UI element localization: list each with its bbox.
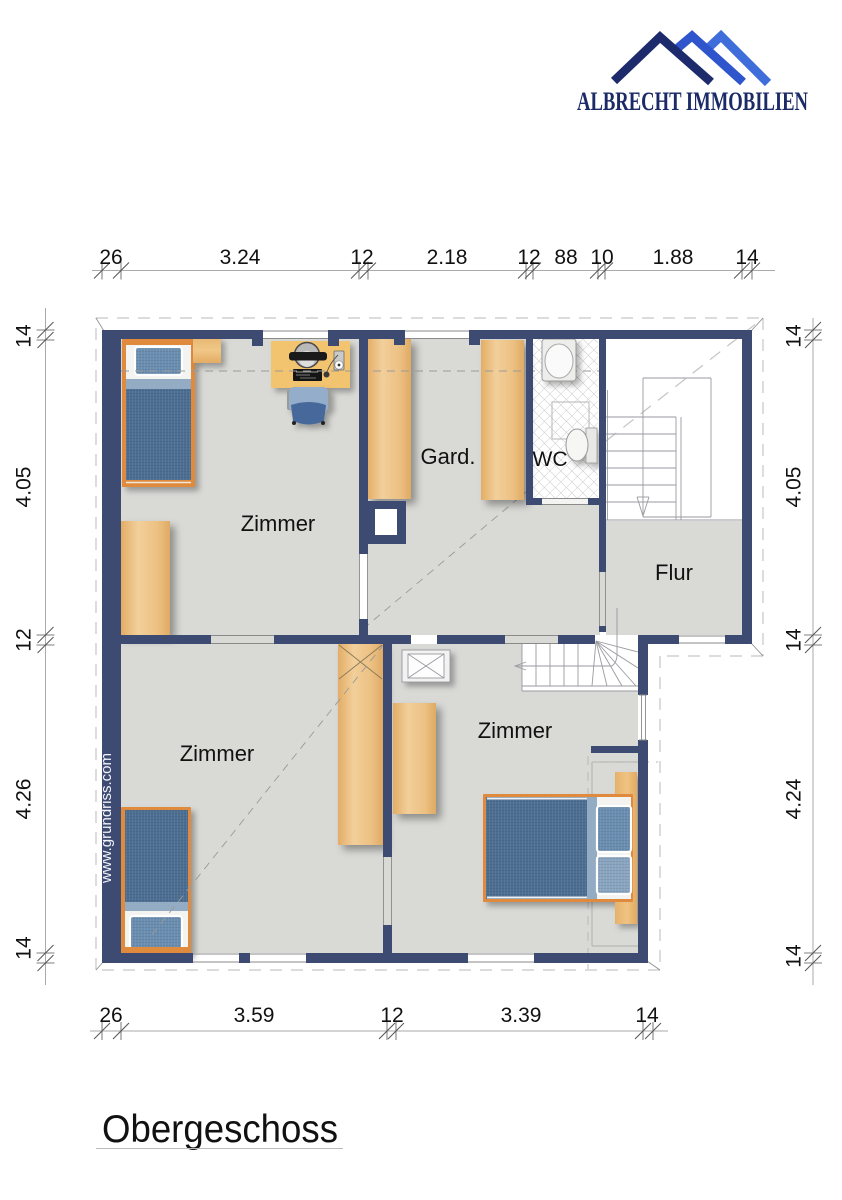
svg-text:Zimmer: Zimmer (241, 511, 316, 536)
svg-text:4.24: 4.24 (783, 778, 806, 819)
svg-text:14: 14 (635, 1004, 659, 1027)
svg-text:Zimmer: Zimmer (180, 741, 255, 766)
svg-text:12: 12 (13, 628, 36, 651)
svg-text:Flur: Flur (655, 560, 693, 585)
svg-text:14: 14 (783, 324, 806, 348)
svg-text:3.59: 3.59 (234, 1004, 275, 1027)
svg-text:12: 12 (517, 246, 540, 269)
svg-text:ALBRECHT IMMOBILIEN: ALBRECHT IMMOBILIEN (577, 87, 808, 116)
svg-text:Zimmer: Zimmer (478, 718, 553, 743)
svg-text:4.05: 4.05 (783, 467, 806, 508)
svg-text:3.24: 3.24 (220, 246, 261, 269)
svg-text:4.05: 4.05 (13, 467, 36, 508)
svg-text:Gard.: Gard. (420, 444, 475, 469)
svg-text:3.39: 3.39 (501, 1004, 542, 1027)
svg-text:14: 14 (783, 628, 806, 652)
svg-text:12: 12 (380, 1004, 403, 1027)
svg-text:14: 14 (13, 324, 36, 348)
svg-text:14: 14 (735, 246, 759, 269)
svg-text:14: 14 (13, 936, 36, 960)
svg-text:10: 10 (590, 246, 613, 269)
svg-text:WC: WC (533, 448, 568, 471)
svg-text:12: 12 (350, 246, 373, 269)
svg-text:1.88: 1.88 (653, 246, 694, 269)
svg-text:4.26: 4.26 (13, 779, 36, 820)
svg-text:Obergeschoss: Obergeschoss (102, 1108, 338, 1151)
svg-text:26: 26 (99, 1004, 122, 1027)
svg-text:88: 88 (554, 246, 577, 269)
svg-text:14: 14 (783, 944, 806, 968)
svg-text:www.grundriss.com: www.grundriss.com (98, 753, 115, 884)
svg-text:26: 26 (99, 246, 122, 269)
svg-text:2.18: 2.18 (427, 246, 468, 269)
